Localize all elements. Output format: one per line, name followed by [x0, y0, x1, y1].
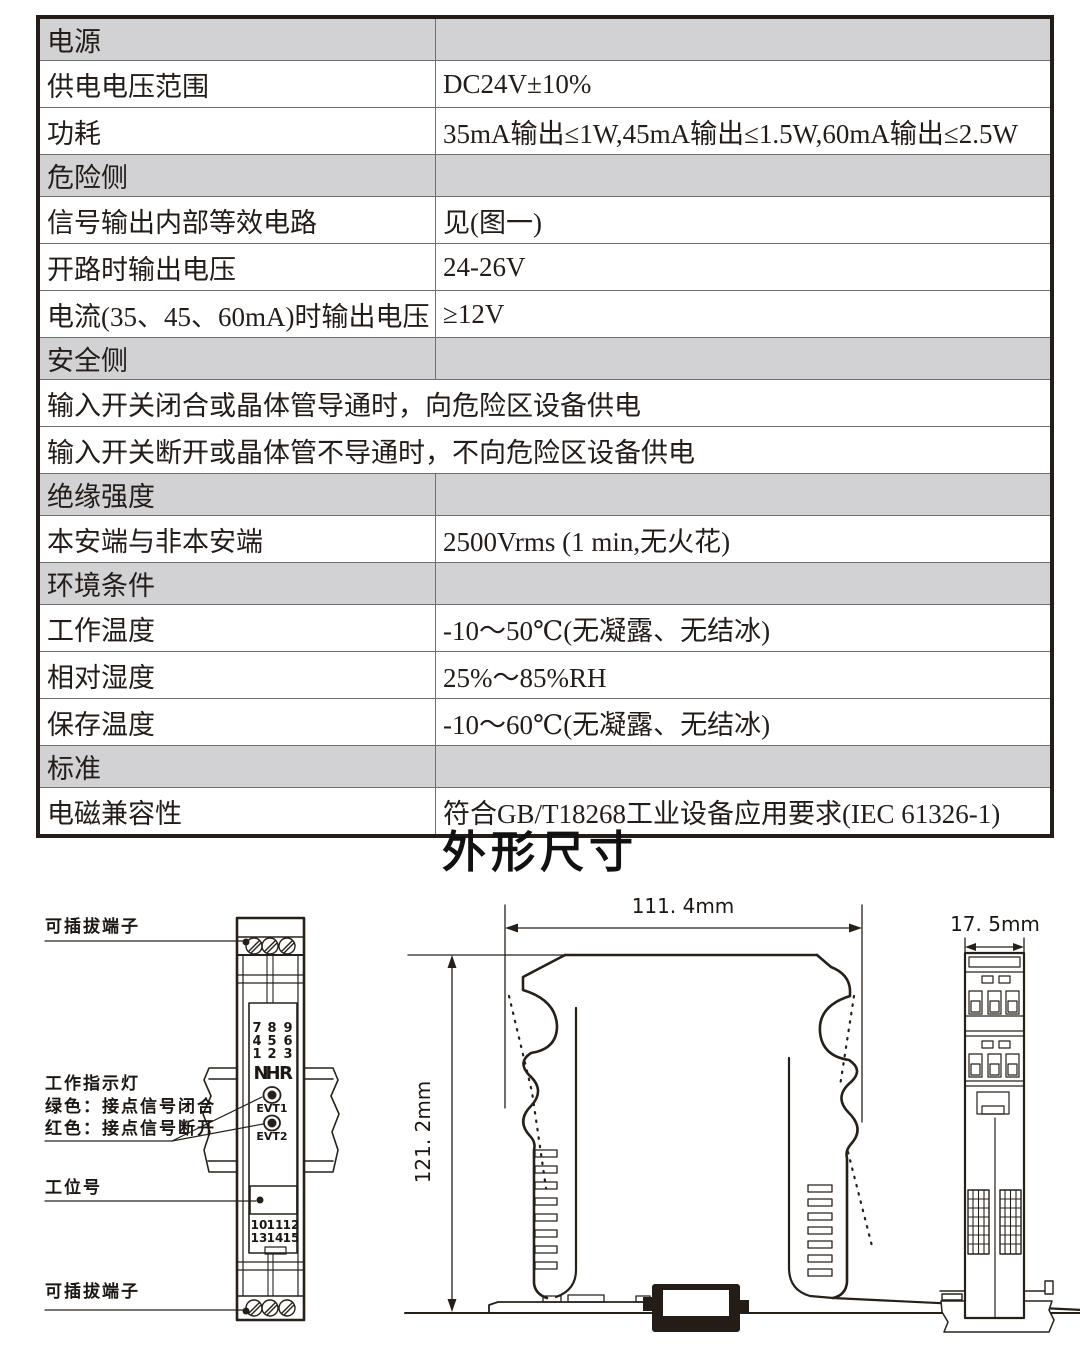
- spec-value-cell: 25%～85%RH: [436, 652, 1053, 699]
- section-cell: 标准: [38, 746, 436, 788]
- table-row: 输入开关断开或晶体管不导通时，不向危险区设备供电: [38, 427, 1052, 474]
- spec-table: 电源 供电电压范围DC24V±10% 功耗35mA输出≤1W,45mA输出≤1.…: [36, 15, 1054, 838]
- label-tag-number: 工位号: [45, 1177, 102, 1198]
- spec-label-cell: 供电电压范围: [38, 61, 436, 108]
- spec-fullwidth-cell: 输入开关断开或晶体管不导通时，不向危险区设备供电: [38, 427, 1052, 474]
- height-dim-label: 121. 2mm: [411, 1081, 435, 1184]
- spec-value-cell: DC24V±10%: [436, 61, 1053, 108]
- table-row: 保存温度-10～60℃(无凝露、无结冰): [38, 699, 1052, 746]
- spec-value-cell: -10～60℃(无凝露、无结冰): [436, 699, 1053, 746]
- section-cell-empty: [436, 155, 1053, 197]
- table-row: 环境条件: [38, 563, 1052, 605]
- spec-label-cell: 功耗: [38, 108, 436, 155]
- section-cell-empty: [436, 474, 1053, 516]
- table-row: 危险侧: [38, 155, 1052, 197]
- spec-label-cell: 工作温度: [38, 605, 436, 652]
- section-cell: 危险侧: [38, 155, 436, 197]
- terminal-number: 3: [283, 1047, 292, 1062]
- terminal-number: 13: [251, 1231, 268, 1245]
- table-row: 标准: [38, 746, 1052, 788]
- section-cell: 安全侧: [38, 338, 436, 380]
- din-clip: [643, 1284, 749, 1332]
- leader-dot: [257, 1197, 264, 1204]
- table-row: 开路时输出电压24-26V: [38, 244, 1052, 291]
- section-cell-empty: [436, 17, 1053, 61]
- table-row: 输入开关闭合或晶体管导通时，向危险区设备供电: [38, 380, 1052, 427]
- spec-fullwidth-cell: 输入开关闭合或晶体管导通时，向危险区设备供电: [38, 380, 1052, 427]
- width-dimension: [505, 905, 862, 1122]
- terminal-number: 1: [252, 1047, 261, 1062]
- spec-value-cell: 35mA输出≤1W,45mA输出≤1.5W,60mA输出≤2.5W: [436, 108, 1053, 155]
- leader-dot: [243, 1308, 250, 1315]
- terminal-number: 11: [267, 1218, 284, 1232]
- table-row: 供电电压范围DC24V±10%: [38, 61, 1052, 108]
- label-indicator-red: 红色：接点信号断开: [45, 1118, 216, 1139]
- spec-value-cell: 2500Vrms (1 min,无火花): [436, 516, 1053, 563]
- section-cell-empty: [436, 563, 1053, 605]
- section-cell-empty: [436, 338, 1053, 380]
- logo-letter: R: [279, 1063, 293, 1084]
- table-row: 电流(35、45、60mA)时输出电压≥12V: [38, 291, 1052, 338]
- dotted-guides: [509, 996, 872, 1246]
- spec-label-cell: 信号输出内部等效电路: [38, 197, 436, 244]
- led-label-evt2: EVT2: [256, 1130, 287, 1143]
- table-row: 信号输出内部等效电路见(图一): [38, 197, 1052, 244]
- spec-value-cell: 见(图一): [436, 197, 1053, 244]
- spec-label-cell: 电流(35、45、60mA)时输出电压: [38, 291, 436, 338]
- width-dim-label: 111. 4mm: [632, 894, 735, 918]
- table-row: 安全侧: [38, 338, 1052, 380]
- led-label-evt1: EVT1: [256, 1102, 287, 1115]
- depth-dim-label: 17. 5mm: [950, 912, 1040, 936]
- terminal-number: 14: [267, 1231, 284, 1245]
- section-cell-empty: [436, 746, 1053, 788]
- table-row: 绝缘强度: [38, 474, 1052, 516]
- page-title: 外形尺寸: [0, 816, 1080, 880]
- terminal-numbers-top: 7 8 9 4 5 6 1 2 3: [252, 1021, 292, 1062]
- spec-label-cell: 相对湿度: [38, 652, 436, 699]
- table-row: 本安端与非本安端2500Vrms (1 min,无火花): [38, 516, 1052, 563]
- terminal-number: 15: [283, 1231, 300, 1245]
- table-row: 相对湿度25%～85%RH: [38, 652, 1052, 699]
- label-indicator-green: 绿色：接点信号闭合: [45, 1096, 216, 1117]
- dimension-drawings: 7 8 9 4 5 6 1 2 3 N H R: [0, 880, 1080, 1371]
- section-cell: 绝缘强度: [38, 474, 436, 516]
- spec-label-cell: 开路时输出电压: [38, 244, 436, 291]
- spec-value-cell: 24-26V: [436, 244, 1053, 291]
- leader-dot: [243, 939, 250, 946]
- callouts: 可插拔端子 工作指示灯 绿色：接点信号闭合 红色：接点信号断开 工位号 可插拔端…: [45, 916, 263, 1310]
- spec-value-cell: -10～50℃(无凝露、无结冰): [436, 605, 1053, 652]
- table-row: 工作温度-10～50℃(无凝露、无结冰): [38, 605, 1052, 652]
- nhr-logo: N H R: [253, 1063, 293, 1084]
- terminal-number: 2: [267, 1047, 276, 1062]
- terminal-number: 10: [251, 1218, 268, 1232]
- spec-label-cell: 本安端与非本安端: [38, 516, 436, 563]
- section-cell: 电源: [38, 17, 436, 61]
- spec-value-cell: ≥12V: [436, 291, 1053, 338]
- label-pluggable-terminal-top: 可插拔端子: [45, 916, 140, 937]
- front-view-drawing: 7 8 9 4 5 6 1 2 3 N H R: [45, 916, 339, 1320]
- terminal-numbers-bottom: 10 11 12 13 14 15: [251, 1218, 300, 1245]
- datasheet-page: 电源 供电电压范围DC24V±10% 功耗35mA输出≤1W,45mA输出≤1.…: [0, 0, 1080, 1371]
- label-pluggable-terminal-bottom: 可插拔端子: [45, 1281, 140, 1302]
- table-row: 功耗35mA输出≤1W,45mA输出≤1.5W,60mA输出≤2.5W: [38, 108, 1052, 155]
- section-cell: 环境条件: [38, 563, 436, 605]
- vent-slots: [535, 1150, 832, 1276]
- table-row: 电源: [38, 17, 1052, 61]
- label-indicator-title: 工作指示灯: [45, 1073, 140, 1094]
- depth-dimension: [965, 938, 1024, 954]
- terminal-number: 12: [283, 1218, 300, 1232]
- spec-label-cell: 保存温度: [38, 699, 436, 746]
- end-view-drawing: 17. 5mm: [940, 912, 1054, 1332]
